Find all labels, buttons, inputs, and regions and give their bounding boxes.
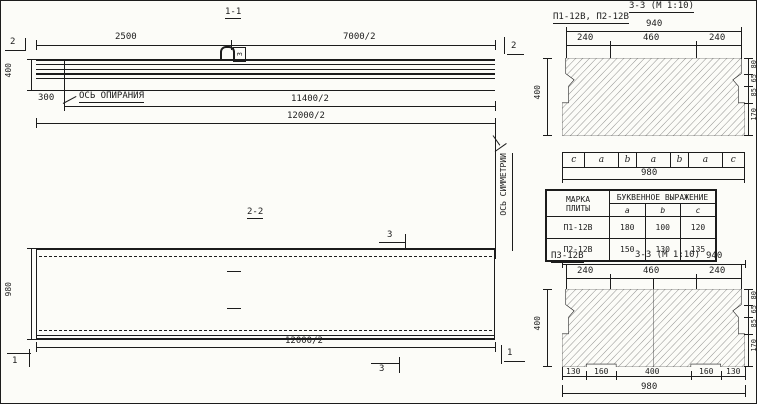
dim-line-top — [36, 45, 495, 46]
section-3-3-title-top: 3-3 (М 1:10) — [629, 1, 694, 13]
centerline-mark — [227, 308, 241, 309]
dim-170: 170 — [750, 108, 757, 121]
dim-tick — [64, 101, 65, 111]
plate-bottom-edge — [36, 338, 495, 340]
cut-mark-2-right: 2 — [511, 41, 516, 51]
dim-tick — [691, 371, 692, 380]
dim-940: 940 — [706, 251, 722, 261]
break-mark — [493, 135, 501, 145]
dim-line-980 — [562, 393, 745, 394]
dim-980: 980 — [4, 282, 13, 296]
table-header-expr: БУКВЕННОЕ ВЫРАЖЕНИЕ — [610, 190, 717, 204]
dim-300: 300 — [38, 93, 54, 103]
dim-240: 240 — [709, 266, 725, 276]
symmetry-label-underline — [512, 153, 513, 251]
dim-tick — [744, 86, 753, 87]
dim-tick — [36, 118, 37, 128]
symmetry-axis-label: ОСЬ СИММЕТРИИ — [499, 153, 508, 216]
dim-line-980 — [31, 248, 32, 340]
col-b: b — [645, 204, 681, 217]
dim-ext — [566, 264, 567, 289]
dim-tick — [744, 58, 753, 59]
dim-line-400 — [547, 289, 548, 367]
center-ext — [653, 278, 654, 289]
dim-130: 130 — [566, 367, 580, 376]
cut-mark-line — [5, 50, 25, 51]
dim-tick — [27, 248, 36, 249]
letter-cell: b — [670, 153, 689, 167]
dim-980: 980 — [641, 168, 657, 178]
dim-tick — [36, 342, 37, 352]
plate-inner-edge — [36, 335, 495, 336]
dim-400: 400 — [533, 85, 542, 99]
dim-240: 240 — [577, 33, 593, 43]
dim-400: 400 — [4, 63, 13, 77]
plate-dashed-line — [39, 330, 492, 331]
dim-65: 65 — [750, 305, 757, 313]
beam-line — [36, 69, 495, 70]
dim-line-11400 — [64, 106, 495, 107]
cut-mark-3-top: 3 — [387, 230, 392, 240]
dim-tick — [744, 334, 753, 335]
letter-cell: a — [688, 153, 721, 167]
letter-cell: a — [584, 153, 617, 167]
dim-ext — [696, 41, 697, 59]
dim-12000-2: 12000/2 — [285, 336, 323, 346]
dim-460: 460 — [643, 266, 659, 276]
dim-240: 240 — [577, 266, 593, 276]
dim-130: 130 — [726, 367, 740, 376]
dim-2500: 2500 — [115, 32, 137, 42]
letter-cell: c — [722, 153, 744, 167]
cut-mark-line — [379, 242, 405, 243]
row-b: 100 — [645, 217, 681, 239]
table-row: П1-12В 180 100 120 — [546, 217, 716, 239]
dim-line-right — [748, 289, 749, 367]
letter-cell: c — [563, 153, 584, 167]
dim-ext — [610, 274, 611, 289]
dim-line-980 — [562, 179, 745, 180]
dim-tick — [562, 168, 563, 183]
cut-mark-1-left: 1 — [12, 356, 17, 366]
plate-mark-label: П3-12В — [551, 251, 584, 263]
loop-mark: 3 — [236, 52, 244, 56]
dim-170: 170 — [750, 339, 757, 352]
section-2-2-title: 2-2 — [247, 207, 263, 219]
dim-11400-2: 11400/2 — [291, 94, 329, 104]
dim-7000-2: 7000/2 — [343, 32, 376, 42]
header-mark-line2: ПЛИТЫ — [566, 204, 590, 213]
dim-tick — [562, 385, 563, 397]
symmetry-axis-line — [495, 127, 496, 259]
beam-line — [36, 78, 495, 79]
dim-tick — [744, 135, 753, 136]
dim-line-400 — [31, 59, 32, 91]
dim-tick — [562, 260, 563, 268]
support-axis-label: ОСЬ ОПИРАНИЯ — [79, 91, 144, 103]
beam-line — [36, 73, 495, 75]
dim-400: 400 — [533, 316, 542, 330]
cut-mark-3-bottom: 3 — [379, 364, 384, 374]
dim-85: 85 — [750, 88, 757, 96]
cut-mark-line — [504, 361, 525, 362]
dim-240: 240 — [709, 33, 725, 43]
dim-ext — [741, 31, 742, 59]
dim-460: 460 — [643, 33, 659, 43]
dim-tick — [495, 342, 496, 352]
cut-mark-tick — [25, 38, 26, 51]
dim-tick — [543, 135, 552, 136]
plate-right-edge — [494, 248, 495, 340]
section-1-1-title: 1-1 — [225, 7, 241, 19]
letter-cell: b — [618, 153, 637, 167]
dim-tick — [744, 168, 745, 183]
dim-line-940 — [566, 31, 741, 32]
cut-mark-tick — [504, 37, 505, 54]
cut-mark-tick — [501, 345, 502, 364]
dim-85: 85 — [750, 319, 757, 327]
letter-cell: a — [636, 153, 669, 167]
dim-ext — [610, 41, 611, 59]
dim-tick — [27, 90, 36, 91]
dim-tick — [745, 385, 746, 397]
dim-980: 980 — [641, 382, 657, 392]
plate-marks-label: П1-12В, П2-12В — [553, 12, 629, 24]
dim-tick — [744, 289, 753, 290]
dim-tick — [543, 58, 552, 59]
dim-80: 80 — [750, 60, 757, 68]
dim-tick — [495, 40, 496, 50]
engineering-drawing: 1-1 2500 7000/2 2 2 3 400 300 ОСЬ ОПИРАН… — [0, 0, 757, 404]
cut-mark-line — [371, 363, 399, 364]
dim-tick — [27, 59, 36, 60]
plate-left-edge — [36, 248, 37, 340]
table-header-row: МАРКА ПЛИТЫ БУКВЕННОЕ ВЫРАЖЕНИЕ — [546, 190, 716, 204]
section-3-3-title-bottom: 3-3 (М 1:10) — [635, 250, 700, 262]
cut-mark-line — [7, 353, 31, 354]
cut-mark-2-left: 2 — [10, 37, 15, 47]
dim-line-bottom — [562, 376, 745, 377]
dim-65: 65 — [750, 74, 757, 82]
beam-top-edge — [36, 59, 495, 61]
dim-tick — [562, 367, 563, 380]
dim-tick — [495, 101, 496, 111]
cut-mark-tick — [399, 357, 400, 373]
dim-tick — [586, 371, 587, 380]
leader-line — [495, 143, 507, 152]
letter-row: c a b a b a c — [562, 152, 745, 168]
col-a: a — [610, 204, 646, 217]
dim-160: 160 — [699, 367, 713, 376]
cut-mark-line — [507, 54, 524, 55]
dim-tick — [543, 366, 552, 367]
dim-ext — [696, 274, 697, 289]
cut-mark-tick — [405, 234, 406, 249]
dim-ext — [566, 31, 567, 59]
dim-tick — [616, 371, 617, 380]
dim-160: 160 — [594, 367, 608, 376]
dim-ext — [741, 264, 742, 289]
header-mark-line1: МАРКА — [566, 195, 590, 204]
centerline-mark — [227, 271, 241, 272]
cut-mark-tick — [29, 349, 30, 367]
plate-top-edge — [36, 248, 495, 250]
dim-tick — [745, 260, 746, 268]
dim-line-12000 — [36, 123, 495, 124]
dim-tick — [27, 339, 36, 340]
dim-940: 940 — [646, 19, 662, 29]
dim-line-940 — [562, 264, 745, 265]
dim-12000-2: 12000/2 — [287, 111, 325, 121]
table-header-mark: МАРКА ПЛИТЫ — [546, 190, 610, 217]
col-c: c — [681, 204, 717, 217]
dim-tick — [745, 367, 746, 380]
dim-tick — [721, 371, 722, 380]
beam-line — [36, 64, 495, 65]
dim-line-12000 — [36, 347, 495, 348]
plate-dashed-line — [39, 256, 492, 257]
dim-80: 80 — [750, 291, 757, 299]
row-c: 120 — [681, 217, 717, 239]
row-a: 180 — [610, 217, 646, 239]
dim-tick — [744, 317, 753, 318]
cross-section-p3-body — [562, 289, 745, 367]
dim-400: 400 — [645, 367, 659, 376]
cut-mark-1-right: 1 — [507, 348, 512, 358]
dim-line-segments — [566, 45, 741, 46]
dim-tick — [543, 289, 552, 290]
cross-section-p1p2-body — [562, 58, 745, 136]
dim-tick — [744, 103, 753, 104]
dim-line-right — [748, 58, 749, 136]
dim-line-400 — [547, 58, 548, 136]
support-axis-line — [64, 59, 65, 106]
row-mark: П1-12В — [546, 217, 610, 239]
dim-tick — [36, 40, 37, 50]
